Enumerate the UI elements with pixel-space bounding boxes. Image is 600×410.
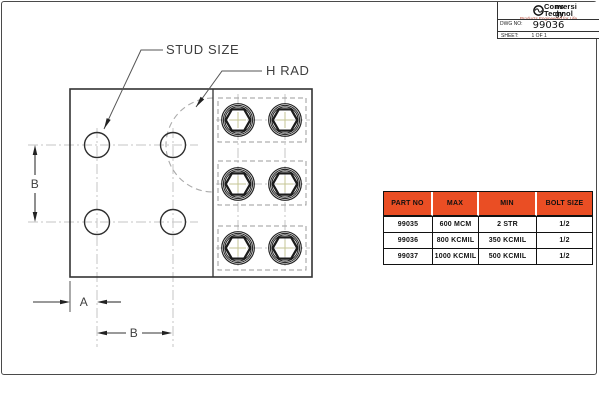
- cell-min: 350 KCMIL: [479, 233, 537, 248]
- h-rad-label: H RAD: [266, 63, 309, 78]
- hex-bolt: [269, 168, 302, 201]
- column-header-min: MIN: [479, 192, 537, 216]
- cell-part-no: 99035: [384, 217, 433, 232]
- dim-b-vertical: B: [31, 145, 40, 222]
- hex-bolt: [222, 168, 255, 201]
- sheet-value: 1 OF 1: [532, 33, 547, 39]
- cell-max: 800 KCMIL: [433, 233, 479, 248]
- table-row: 99035 600 MCM 2 STR 1/2: [384, 216, 592, 232]
- cell-bolt-size: 1/2: [537, 249, 592, 264]
- cell-min: 500 KCMIL: [479, 249, 537, 264]
- lug-body-outline: [70, 89, 312, 277]
- table-row: 99037 1000 KCMIL 500 KCMIL 1/2: [384, 248, 592, 264]
- parts-table: PART NO MAX MIN BOLT SIZE 99035 600 MCM …: [383, 191, 593, 265]
- dim-b-horizontal-label: B: [130, 326, 139, 340]
- cell-part-no: 99037: [384, 249, 433, 264]
- dwg-no-cell: DWG NO: 99036: [498, 19, 599, 31]
- stud-size-leader: STUD SIZE: [104, 42, 239, 129]
- company-logo: Conversi ns Technol gy Products Engineer…: [498, 2, 599, 19]
- column-header-part-no: PART NO: [384, 192, 433, 216]
- dim-b-vertical-label: B: [31, 177, 40, 191]
- cell-max: 1000 KCMIL: [433, 249, 479, 264]
- dwg-no-value: 99036: [498, 20, 599, 31]
- hex-bolt: [269, 104, 302, 137]
- parts-table-header-row: PART NO MAX MIN BOLT SIZE: [384, 192, 592, 216]
- stud-size-label: STUD SIZE: [166, 42, 239, 57]
- hex-bolt: [222, 232, 255, 265]
- title-block: Conversi ns Technol gy Products Engineer…: [497, 2, 599, 39]
- cell-max: 600 MCM: [433, 217, 479, 232]
- column-header-bolt-size: BOLT SIZE: [537, 192, 592, 216]
- sheet-cell: SHEET: 1 OF 1: [498, 31, 599, 39]
- conversion-wave-circle-icon: [533, 5, 544, 16]
- cell-bolt-size: 1/2: [537, 233, 592, 248]
- hex-bolt: [222, 104, 255, 137]
- cell-bolt-size: 1/2: [537, 217, 592, 232]
- cell-min: 2 STR: [479, 217, 537, 232]
- sheet-label: SHEET:: [501, 33, 519, 39]
- stud-holes: [85, 133, 186, 235]
- dim-b-horizontal: B: [97, 326, 172, 340]
- hex-bolt: [269, 232, 302, 265]
- cell-part-no: 99036: [384, 233, 433, 248]
- drawing-sheet: B A B STUD SIZE H RAD: [0, 0, 600, 410]
- table-row: 99036 800 KCMIL 350 KCMIL 1/2: [384, 232, 592, 248]
- column-header-max: MAX: [433, 192, 479, 216]
- dim-a: A: [33, 281, 121, 312]
- dim-a-label: A: [80, 295, 89, 309]
